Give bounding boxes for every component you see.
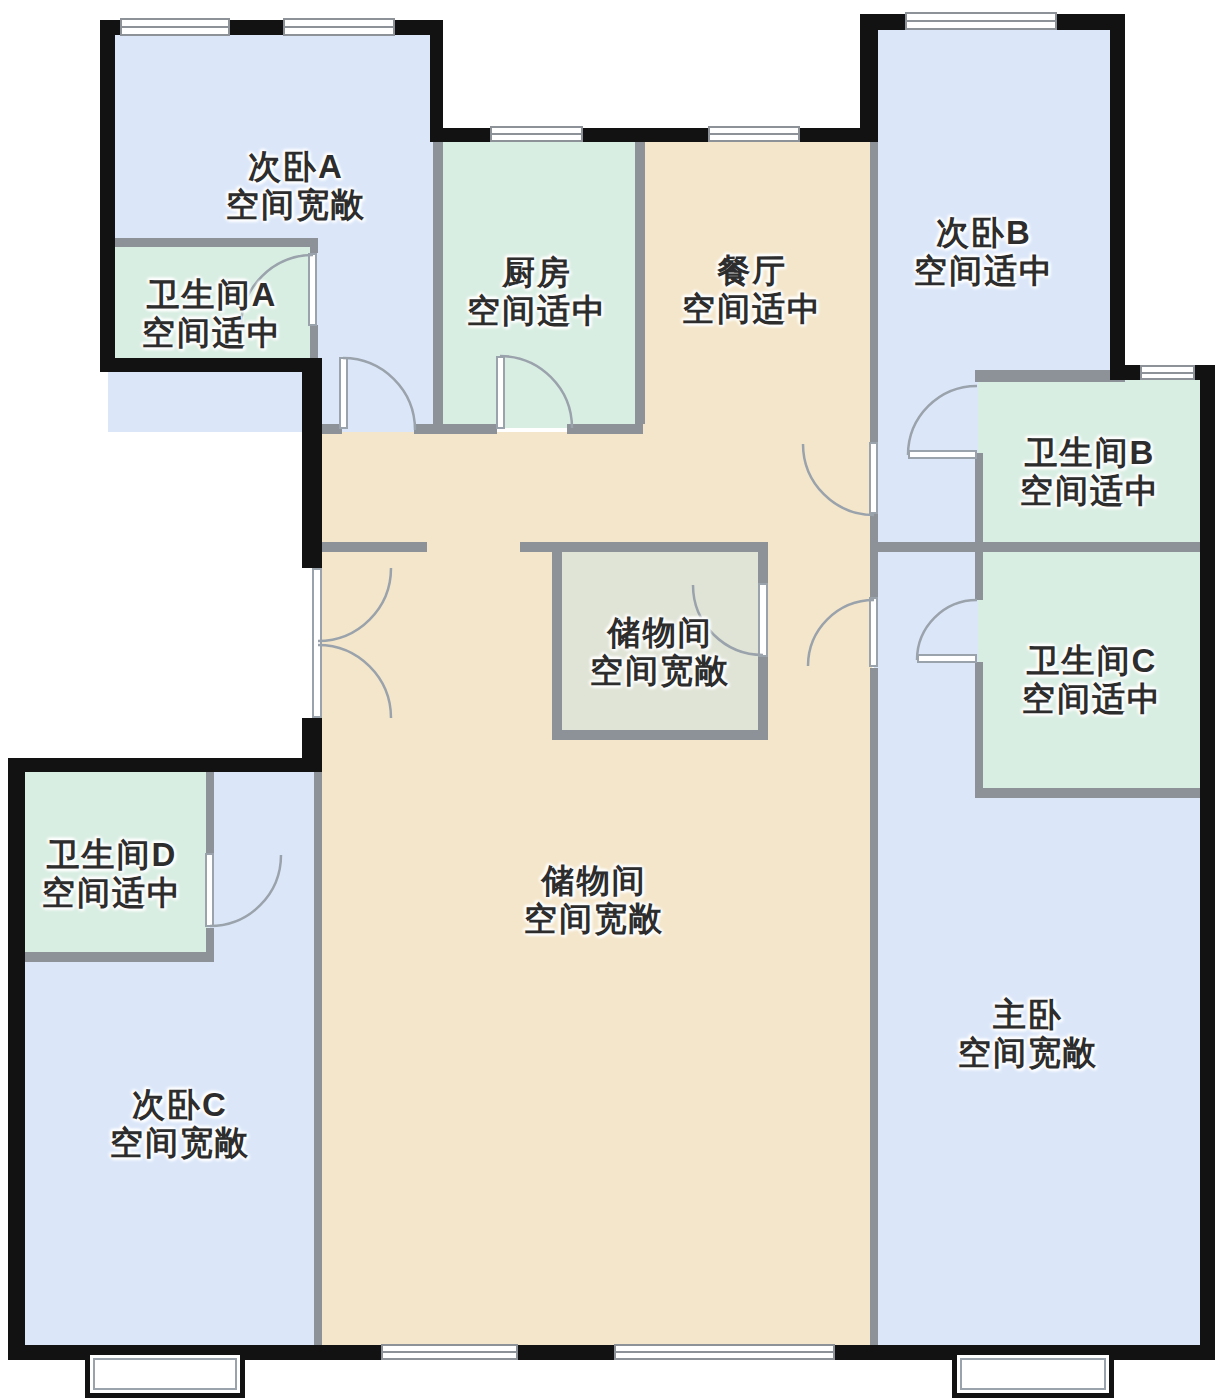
- exterior-wall: [1200, 365, 1215, 1360]
- room-name: 主卧: [868, 996, 1188, 1034]
- window: [905, 12, 1057, 30]
- room-name: 储物间: [500, 614, 820, 652]
- window: [283, 18, 395, 36]
- window: [490, 126, 583, 142]
- room-label-bathroom-d: 卫生间D 空间适中: [0, 836, 272, 912]
- room-desc: 空间适中: [930, 472, 1220, 510]
- room-desc: 空间适中: [0, 874, 272, 912]
- partition-wall: [975, 370, 1125, 382]
- window: [381, 1344, 518, 1360]
- partition-wall: [310, 238, 318, 253]
- room-label-master-bedroom: 主卧 空间宽敞: [868, 996, 1188, 1072]
- room-name: 卫生间D: [0, 836, 272, 874]
- room-name: 次卧C: [20, 1086, 340, 1124]
- room-name: 次卧A: [136, 148, 456, 186]
- room-desc: 空间适中: [824, 252, 1144, 290]
- partition-wall: [975, 788, 1205, 798]
- room-name: 卫生间B: [930, 434, 1220, 472]
- exterior-wall: [302, 358, 322, 568]
- room-desc: 空间适中: [52, 314, 372, 352]
- exterior-wall: [1110, 14, 1125, 380]
- window: [120, 18, 230, 36]
- room-desc: 空间适中: [932, 680, 1220, 718]
- partition-wall: [414, 424, 497, 434]
- partition-wall: [567, 424, 643, 434]
- window: [708, 126, 800, 142]
- window: [614, 1344, 835, 1360]
- room-desc: 空间宽敞: [136, 186, 456, 224]
- room-desc: 空间宽敞: [868, 1034, 1188, 1072]
- partition-wall: [314, 542, 427, 552]
- exterior-wall: [430, 20, 443, 142]
- room-label-bathroom-b: 卫生间B 空间适中: [930, 434, 1220, 510]
- partition-wall: [25, 952, 214, 962]
- floor-plan: 次卧A 空间宽敞 卫生间A 空间适中 厨房 空间适中 餐厅 空间适中 次卧B 空…: [0, 0, 1220, 1400]
- partition-wall: [108, 238, 318, 247]
- window: [1140, 365, 1195, 380]
- exterior-wall: [8, 758, 322, 772]
- door-leaf: [339, 357, 348, 429]
- room-name: 储物间: [434, 862, 754, 900]
- room-label-bathroom-a: 卫生间A 空间适中: [52, 276, 372, 352]
- room-desc: 空间宽敞: [500, 652, 820, 690]
- room-label-bathroom-c: 卫生间C 空间适中: [932, 642, 1220, 718]
- partition-wall: [314, 770, 322, 1345]
- room-label-bedroom-c: 次卧C 空间宽敞: [20, 1086, 340, 1162]
- door-leaf: [869, 442, 878, 514]
- room-desc: 空间宽敞: [434, 900, 754, 938]
- exterior-wall: [100, 358, 322, 372]
- bay-window: [952, 1350, 1114, 1398]
- exterior-wall: [860, 14, 878, 140]
- room-label-bedroom-a: 次卧A 空间宽敞: [136, 148, 456, 224]
- room-label-bedroom-b: 次卧B 空间适中: [824, 214, 1144, 290]
- room-desc: 空间适中: [592, 290, 912, 328]
- partition-wall: [552, 730, 768, 740]
- partition-wall: [975, 552, 983, 600]
- room-desc: 空间宽敞: [20, 1124, 340, 1162]
- room-name: 卫生间A: [52, 276, 372, 314]
- door-leaf: [496, 356, 505, 429]
- room-name: 卫生间C: [932, 642, 1220, 680]
- room-label-storage-hall: 储物间 空间宽敞: [434, 862, 754, 938]
- door-leaf: [869, 597, 878, 667]
- partition-wall: [552, 542, 768, 552]
- entry-door-leaf: [312, 568, 322, 718]
- partition-wall: [758, 542, 768, 583]
- room-label-storage-small: 储物间 空间宽敞: [500, 614, 820, 690]
- room-name: 次卧B: [824, 214, 1144, 252]
- partition-wall: [870, 542, 1205, 552]
- bay-window: [85, 1350, 245, 1398]
- partition-wall: [870, 513, 878, 600]
